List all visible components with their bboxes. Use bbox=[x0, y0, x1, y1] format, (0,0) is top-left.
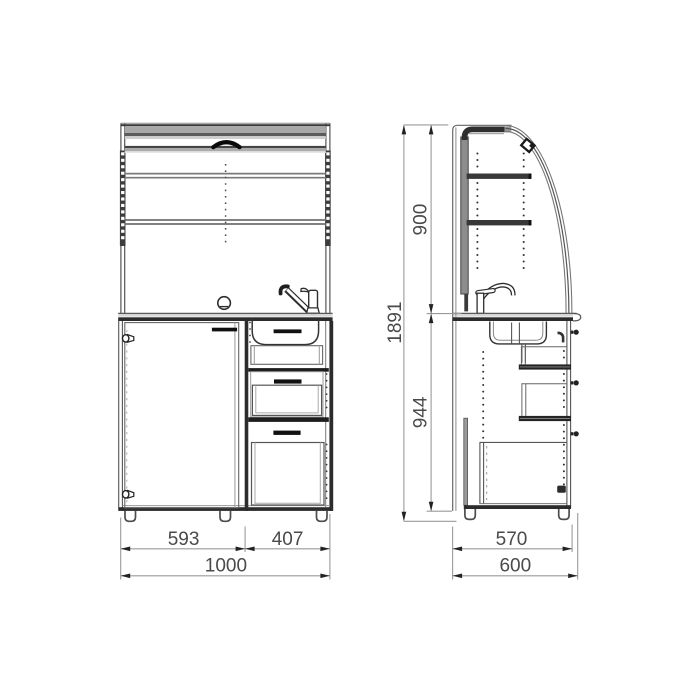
svg-text:1891: 1891 bbox=[385, 301, 406, 343]
svg-text:900: 900 bbox=[411, 204, 432, 236]
svg-text:570: 570 bbox=[496, 529, 528, 550]
svg-text:944: 944 bbox=[410, 396, 431, 428]
svg-text:1000: 1000 bbox=[205, 556, 247, 577]
svg-text:600: 600 bbox=[499, 556, 531, 577]
svg-text:407: 407 bbox=[272, 529, 304, 550]
svg-text:593: 593 bbox=[168, 529, 200, 550]
